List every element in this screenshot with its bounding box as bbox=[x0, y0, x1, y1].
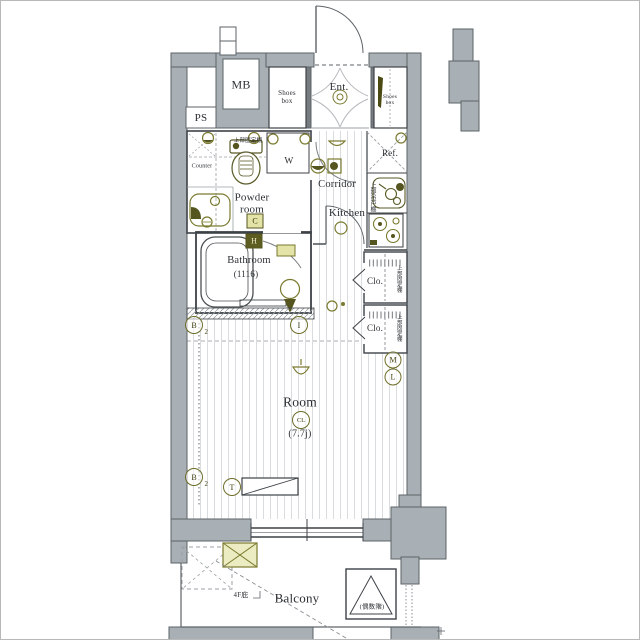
corridor-label: Corridor bbox=[318, 179, 356, 191]
b-lower-marker: B2 bbox=[185, 468, 203, 486]
l-marker: L bbox=[385, 369, 402, 386]
eaves-label: 4F庇 bbox=[234, 592, 249, 600]
washer-label: W bbox=[284, 157, 293, 168]
mb-label: MB bbox=[231, 78, 250, 91]
kitchen-label: Kitchen bbox=[329, 207, 365, 219]
stove-icon bbox=[369, 214, 403, 247]
floor-plan-drawing bbox=[1, 1, 640, 640]
counter-label: Counter bbox=[192, 164, 213, 171]
tv-marker: T bbox=[223, 478, 241, 496]
washbasin-icon bbox=[190, 194, 230, 227]
hanging-cupboard-label: 上部吊戸棚 bbox=[369, 182, 375, 212]
evacuation-hatch-label: (偶数階) bbox=[360, 603, 385, 610]
control-panel-icon bbox=[277, 245, 295, 256]
bathroom-label: Bathroom bbox=[227, 255, 271, 267]
m-marker: M bbox=[385, 352, 402, 369]
balcony-label: Balcony bbox=[275, 592, 320, 607]
evacuation-hatch bbox=[346, 569, 396, 619]
kitchen-sink-icon bbox=[373, 178, 405, 208]
window bbox=[251, 519, 363, 541]
shoes-box-right-label: Shoes box bbox=[383, 94, 397, 106]
bathroom-size-label: (1116) bbox=[234, 269, 259, 279]
c-box-marker: C bbox=[247, 214, 264, 229]
closet-upper-label: Clo. bbox=[367, 276, 383, 286]
ceiling-light-marker: CL bbox=[292, 411, 310, 429]
h-box-marker: H bbox=[246, 234, 263, 249]
closet-upper-shelf-label: 上部固定棚 bbox=[395, 265, 401, 293]
entrance-door bbox=[311, 6, 369, 128]
refrigerator-label: Ref. bbox=[382, 148, 398, 158]
upper-shelf-label: 上部固定棚 bbox=[234, 138, 263, 144]
entrance-tile bbox=[312, 68, 368, 127]
toilet-icon bbox=[230, 140, 262, 184]
ps-label: PS bbox=[195, 112, 208, 124]
floor-plan: MB PS Shoes box Ent. Shoes box Counter 上… bbox=[0, 0, 640, 640]
room-label: Room bbox=[283, 394, 317, 409]
closet-lower-shelf-label: 上部固定棚 bbox=[395, 314, 401, 342]
room-size-label: (7.7j) bbox=[288, 428, 311, 439]
closet-lower-label: Clo. bbox=[367, 323, 383, 333]
entrance-label: Ent. bbox=[330, 81, 349, 93]
intercom-marker: I bbox=[290, 316, 308, 334]
b-upper-marker: B2 bbox=[185, 316, 203, 334]
shoes-box-left-label: Shoes box bbox=[278, 90, 296, 106]
